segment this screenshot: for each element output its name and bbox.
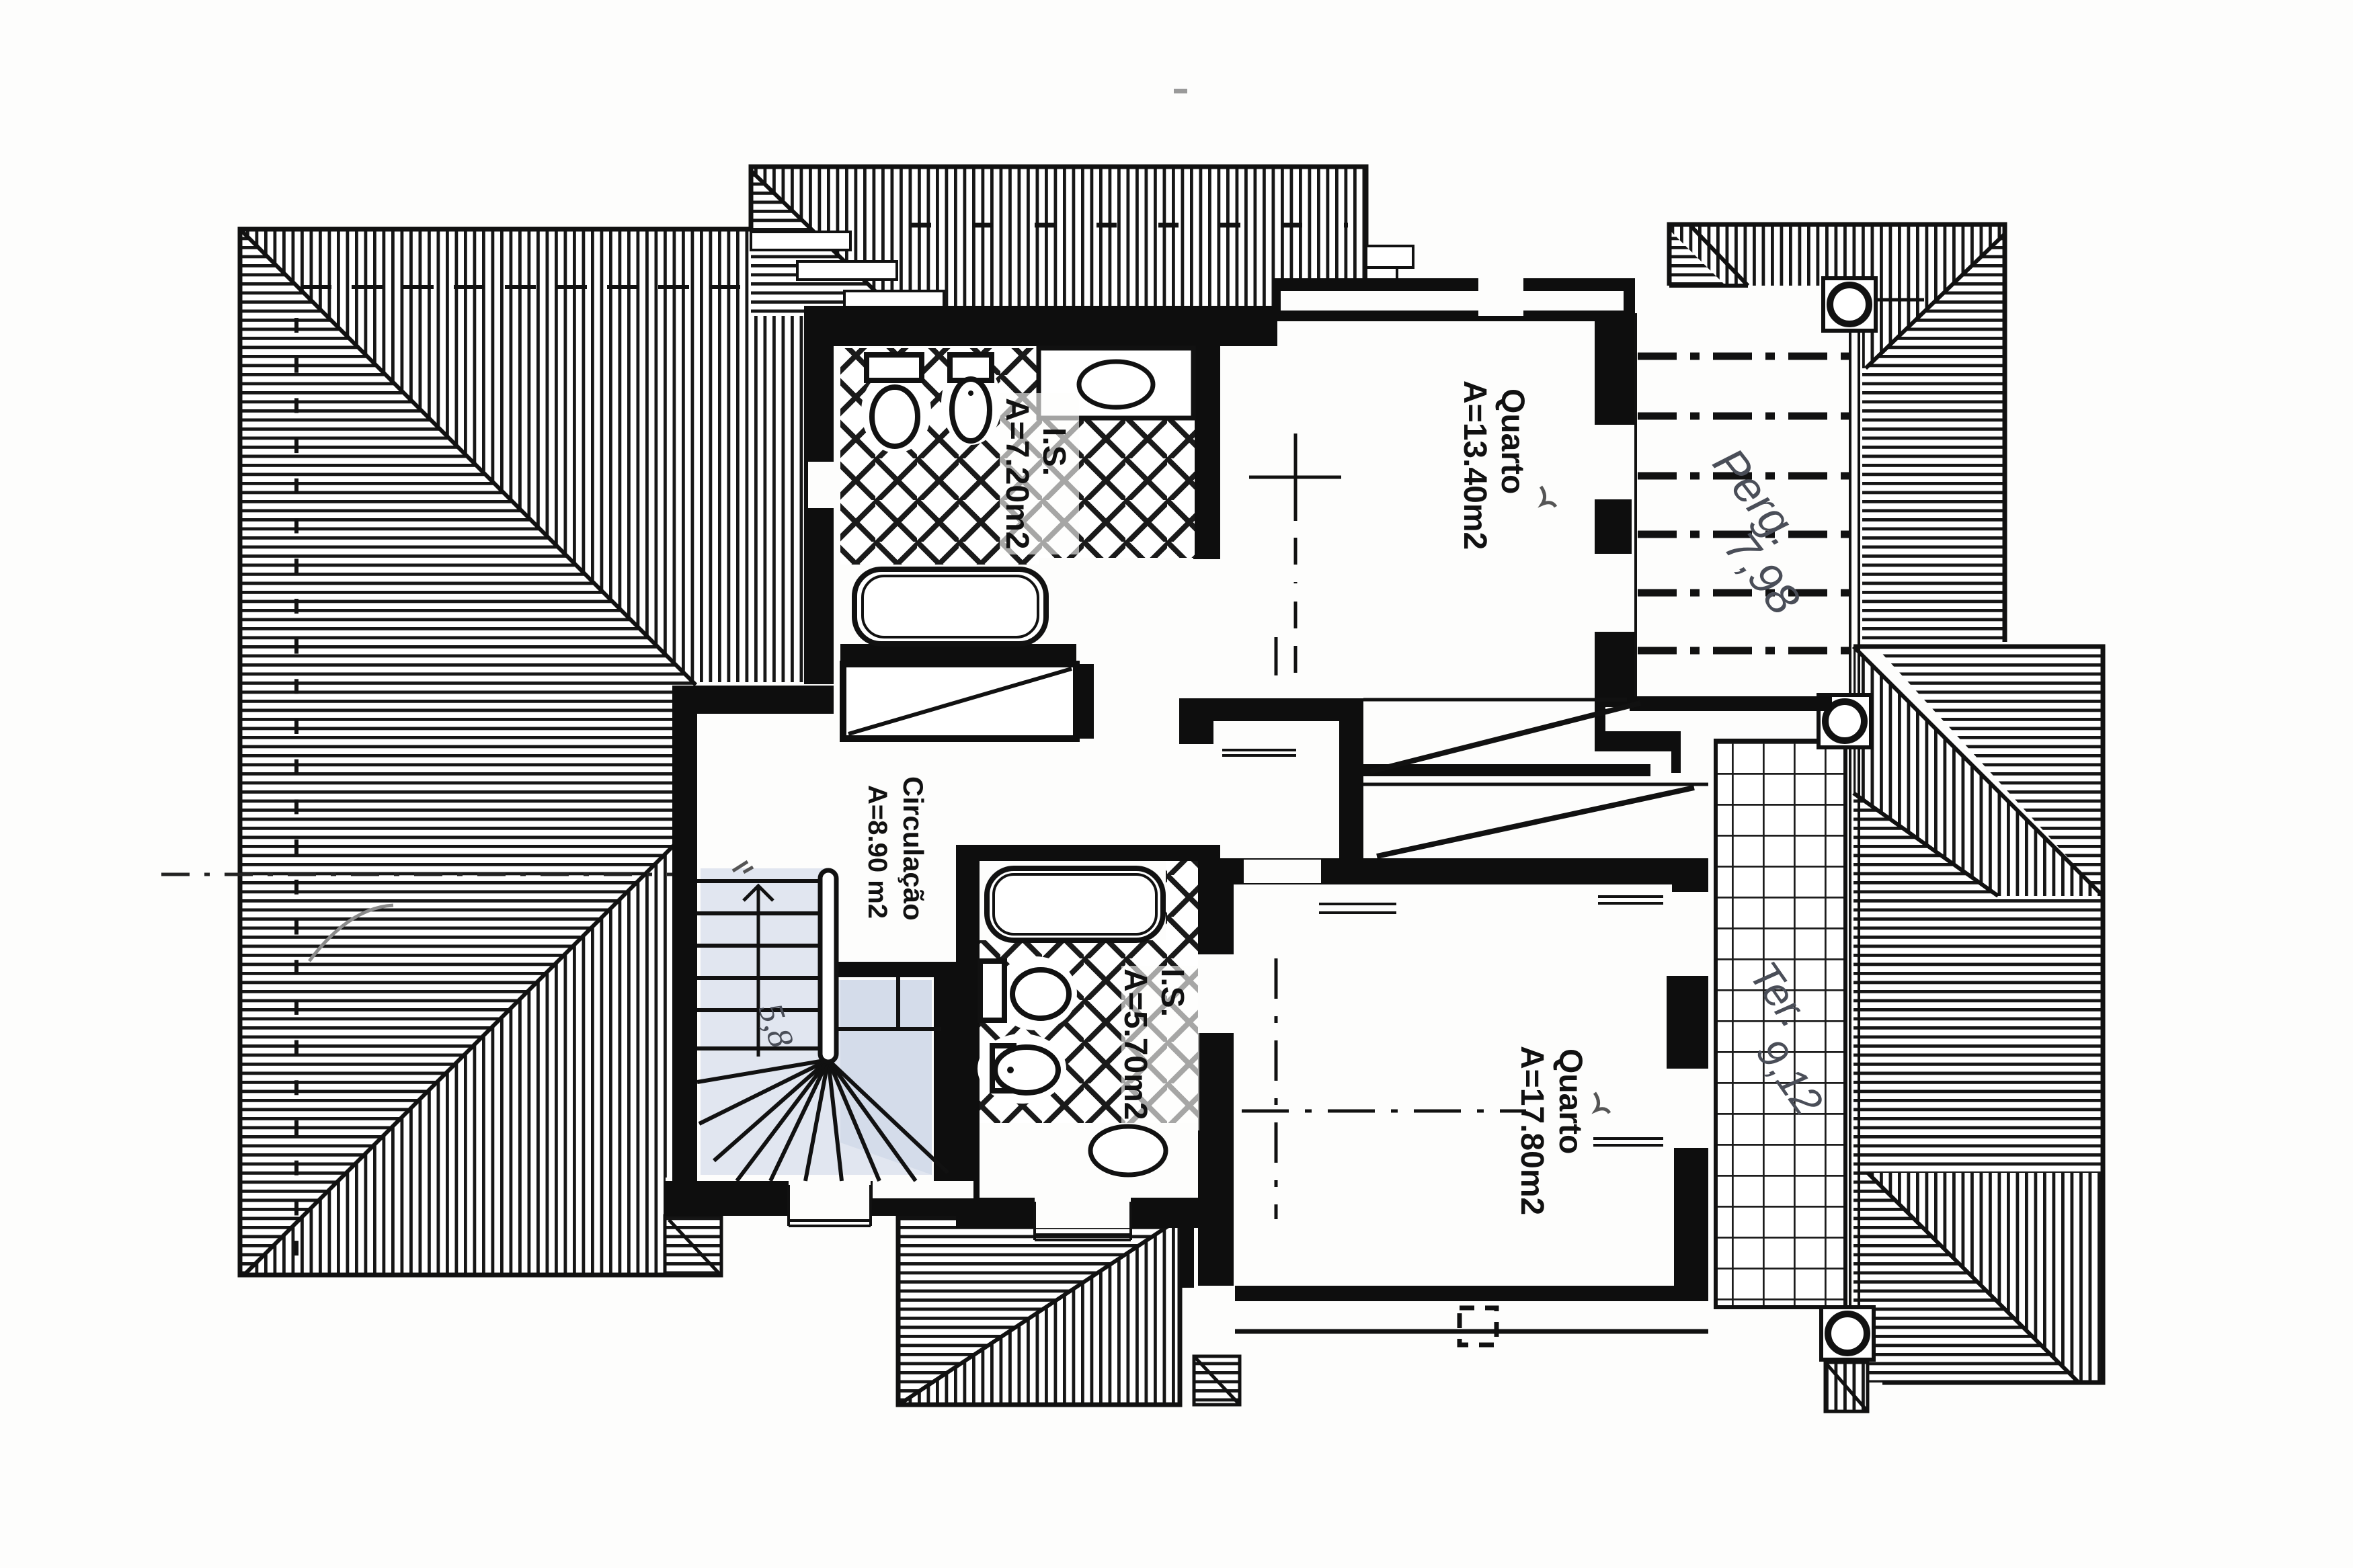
svg-text:Quarto: Quarto: [1552, 1048, 1588, 1154]
svg-text:I.S.: I.S.: [1154, 968, 1190, 1017]
svg-text:A=7.20m2: A=7.20m2: [999, 398, 1035, 550]
svg-text:A=5.70m2: A=5.70m2: [1117, 968, 1153, 1120]
svg-text:A=17.80m2: A=17.80m2: [1514, 1046, 1550, 1215]
svg-text:A=13.40m2: A=13.40m2: [1457, 380, 1492, 550]
svg-text:I.S.: I.S.: [1036, 427, 1072, 476]
svg-text:A=8.90 m2: A=8.90 m2: [863, 785, 892, 919]
svg-text:Quarto: Quarto: [1494, 388, 1530, 494]
svg-text:Circulação: Circulação: [898, 776, 929, 921]
